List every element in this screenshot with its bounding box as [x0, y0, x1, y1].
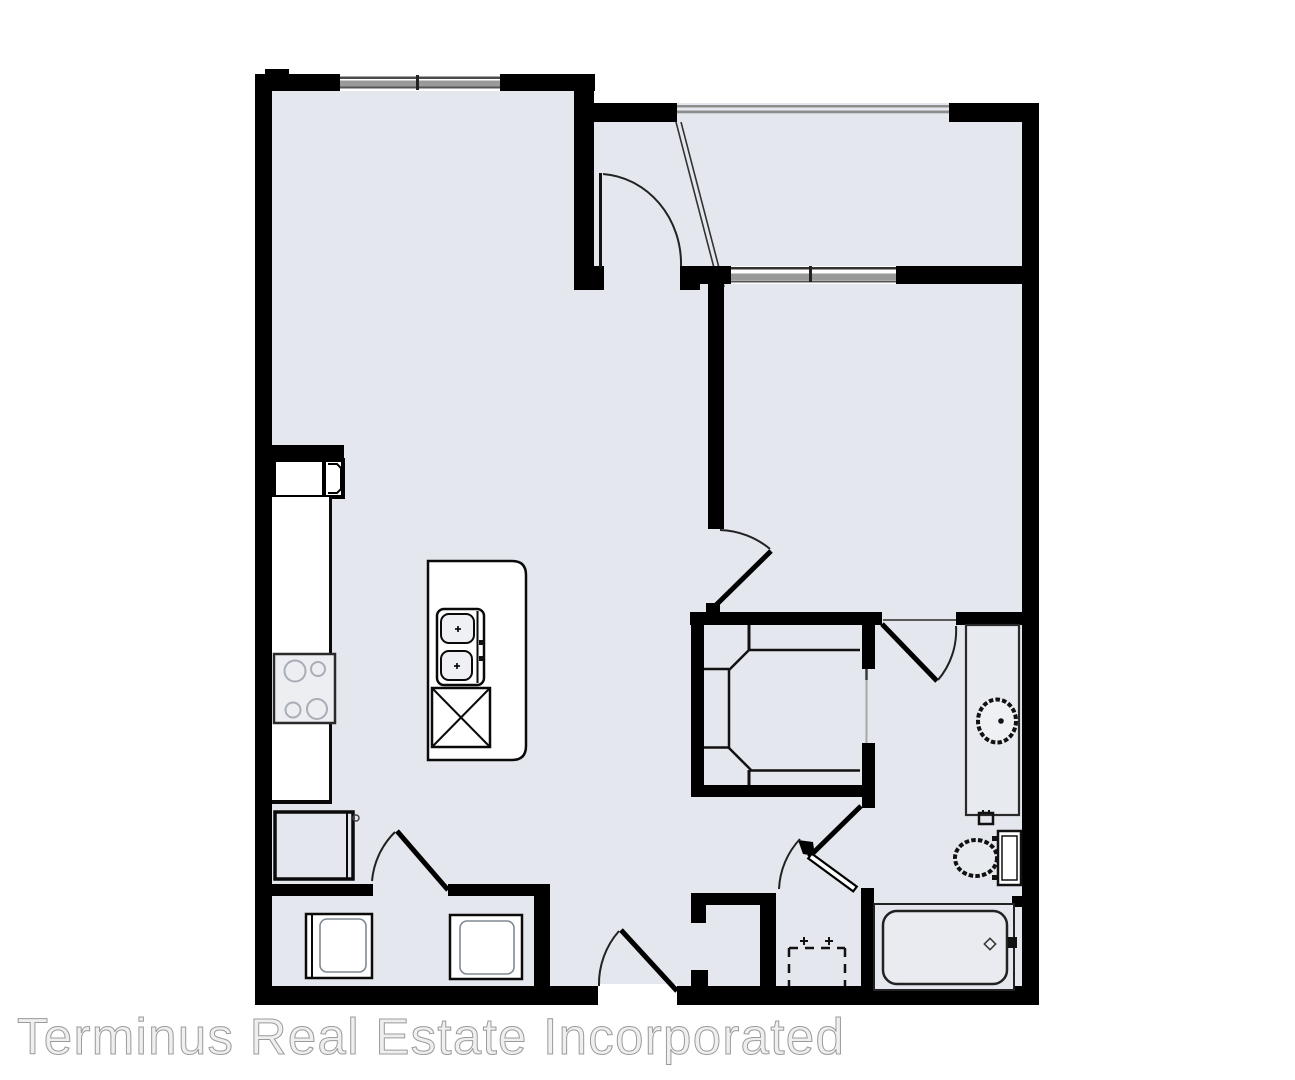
svg-text:Terminus Real Estate Incorpora: Terminus Real Estate Incorporated	[17, 1008, 845, 1065]
